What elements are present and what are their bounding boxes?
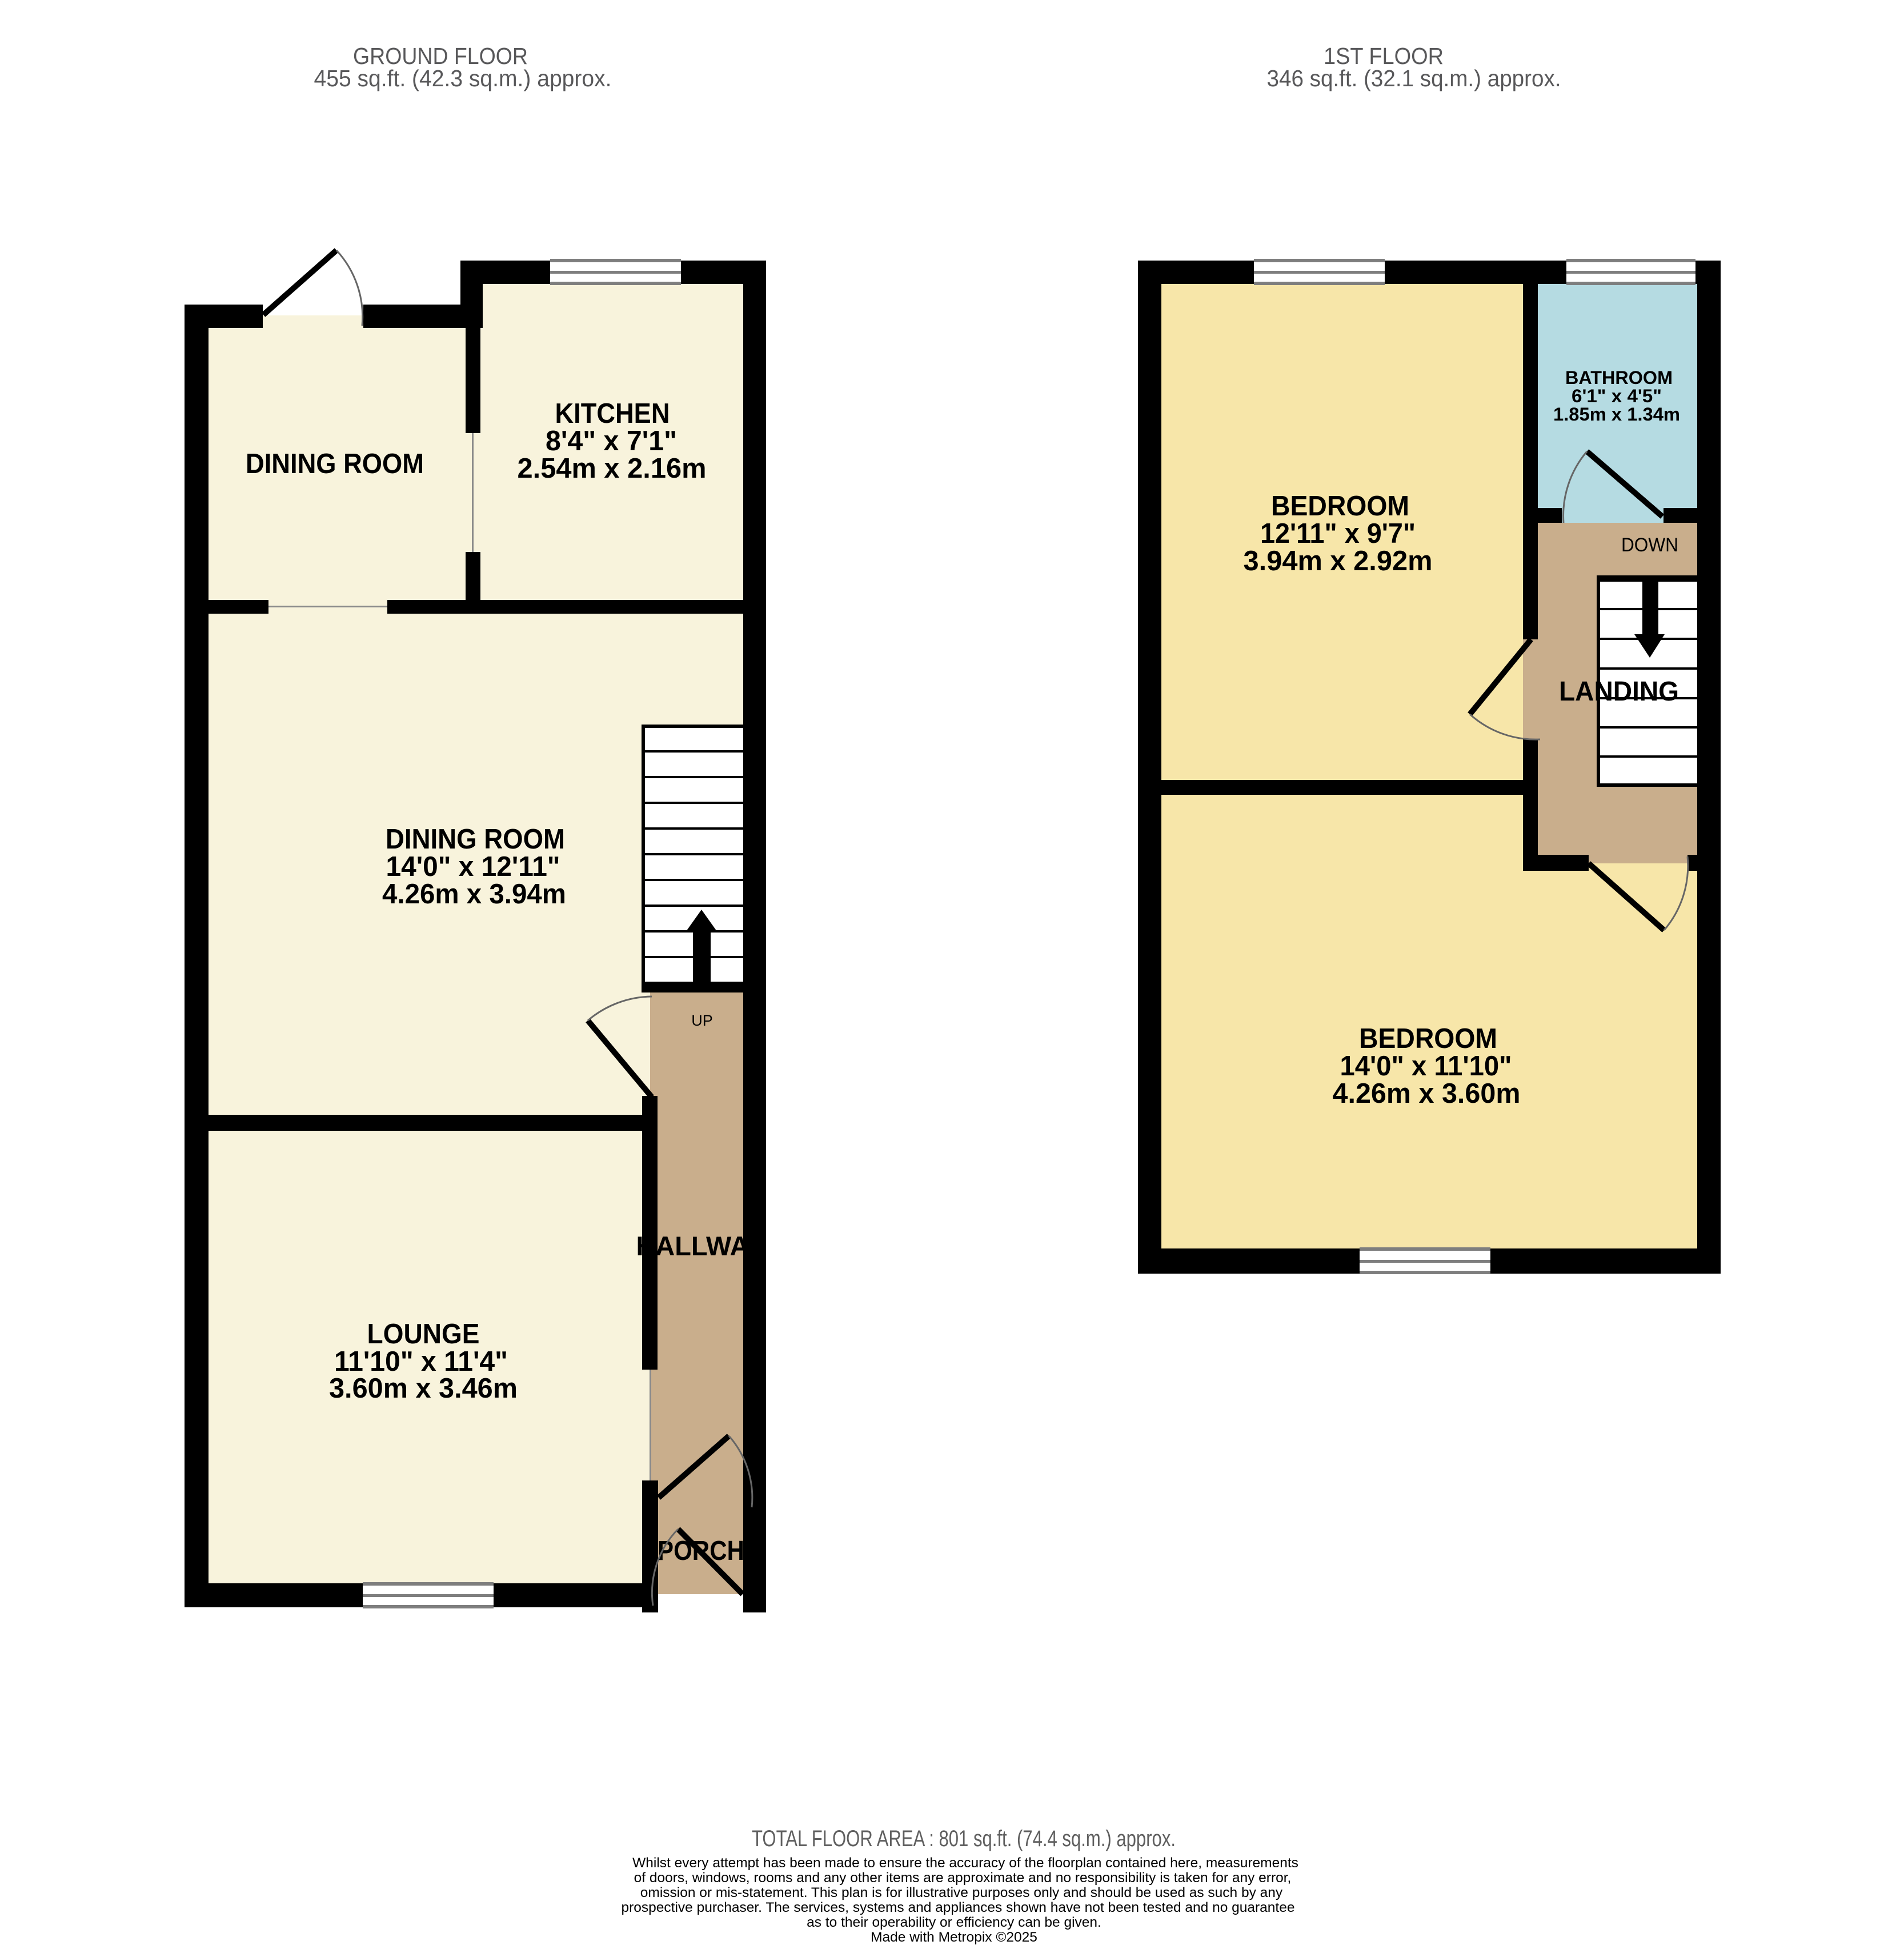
svg-text:4.26m x 3.60m: 4.26m x 3.60m	[1333, 1078, 1521, 1109]
svg-text:as to their operability or eff: as to their operability or efficiency ca…	[807, 1915, 1101, 1930]
svg-text:2.54m x 2.16m: 2.54m x 2.16m	[518, 453, 707, 484]
svg-text:8'4" x 7'1": 8'4" x 7'1"	[546, 426, 677, 457]
svg-text:DINING ROOM: DINING ROOM	[246, 449, 424, 479]
svg-text:6'1" x 4'5": 6'1" x 4'5"	[1572, 386, 1662, 406]
svg-text:1.85m x 1.34m: 1.85m x 1.34m	[1553, 404, 1680, 425]
svg-text:LOUNGE: LOUNGE	[367, 1319, 480, 1350]
svg-text:BEDROOM: BEDROOM	[1271, 491, 1409, 522]
svg-text:BEDROOM: BEDROOM	[1359, 1023, 1497, 1054]
svg-text:12'11" x 9'7": 12'11" x 9'7"	[1260, 518, 1416, 549]
svg-text:14'0" x 12'11": 14'0" x 12'11"	[386, 851, 560, 882]
svg-text:3.60m x 3.46m: 3.60m x 3.46m	[329, 1373, 518, 1404]
svg-text:Whilst every attempt has been: Whilst every attempt has been made to en…	[632, 1855, 1298, 1871]
svg-text:KITCHEN: KITCHEN	[555, 398, 670, 429]
svg-text:455 sq.ft. (42.3 sq.m.) approx: 455 sq.ft. (42.3 sq.m.) approx.	[314, 65, 612, 91]
svg-text:TOTAL FLOOR AREA : 801 sq.ft.: TOTAL FLOOR AREA : 801 sq.ft. (74.4 sq.m…	[752, 1826, 1176, 1851]
svg-text:Made with Metropix ©2025: Made with Metropix ©2025	[871, 1930, 1037, 1945]
svg-text:14'0" x 11'10": 14'0" x 11'10"	[1340, 1051, 1512, 1082]
svg-text:LANDING: LANDING	[1559, 677, 1679, 707]
svg-text:omission or mis-statement. Thi: omission or mis-statement. This plan is …	[640, 1885, 1283, 1900]
svg-text:UP: UP	[691, 1012, 713, 1029]
svg-text:DINING ROOM: DINING ROOM	[386, 824, 565, 855]
svg-text:11'10" x 11'4": 11'10" x 11'4"	[334, 1346, 508, 1377]
svg-text:4.26m x 3.94m: 4.26m x 3.94m	[382, 879, 566, 910]
svg-text:prospective purchaser. The ser: prospective purchaser. The services, sys…	[621, 1900, 1294, 1915]
svg-text:of doors, windows, rooms and a: of doors, windows, rooms and any other i…	[634, 1870, 1292, 1886]
svg-text:346 sq.ft. (32.1 sq.m.) approx: 346 sq.ft. (32.1 sq.m.) approx.	[1267, 65, 1561, 91]
svg-text:3.94m x 2.92m: 3.94m x 2.92m	[1244, 546, 1433, 577]
svg-text:DOWN: DOWN	[1621, 534, 1678, 556]
svg-text:BATHROOM: BATHROOM	[1565, 367, 1673, 388]
